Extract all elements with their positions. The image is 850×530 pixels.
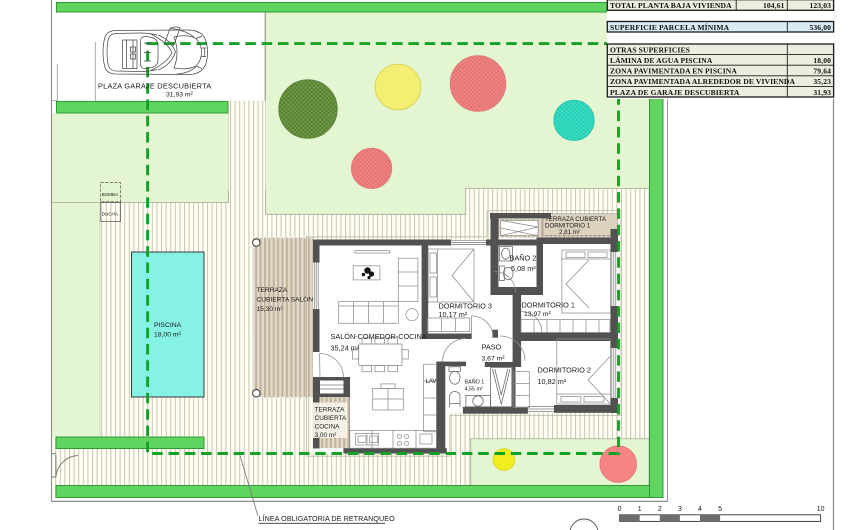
svg-text:10: 10	[817, 506, 825, 513]
svg-text:PISCINA: PISCINA	[154, 322, 182, 329]
svg-text:3,00 m²: 3,00 m²	[315, 432, 337, 439]
svg-text:5: 5	[718, 506, 722, 513]
svg-text:4: 4	[698, 506, 702, 513]
svg-text:LAV: LAV	[426, 379, 437, 385]
svg-text:10,17 m²: 10,17 m²	[439, 310, 468, 319]
svg-text:104,61: 104,61	[763, 1, 785, 10]
svg-text:BAÑO 1: BAÑO 1	[465, 379, 485, 386]
svg-text:ZONA PAVIMENTADA EN PISCINA: ZONA PAVIMENTADA EN PISCINA	[610, 67, 737, 76]
svg-text:DUCHA: DUCHA	[102, 212, 119, 217]
svg-text:LÁMINA DE AGUA PISCINA: LÁMINA DE AGUA PISCINA	[610, 55, 713, 65]
svg-text:31,93 m²: 31,93 m²	[166, 92, 194, 99]
svg-text:TERRAZA: TERRAZA	[315, 407, 346, 414]
svg-text:TOTAL PLANTA BAJA VIVIENDA: TOTAL PLANTA BAJA VIVIENDA	[610, 1, 732, 10]
svg-text:BAÑO 2: BAÑO 2	[510, 254, 537, 263]
svg-text:15,30 m²: 15,30 m²	[257, 306, 284, 313]
svg-text:3,67 m²: 3,67 m²	[482, 356, 506, 363]
svg-text:CUBIERTA SALÓN: CUBIERTA SALÓN	[257, 295, 314, 304]
svg-text:OTRAS SUPERFICIES: OTRAS SUPERFICIES	[610, 45, 690, 54]
svg-text:LÍNEA OBLIGATORIA DE RETRANQUE: LÍNEA OBLIGATORIA DE RETRANQUEO	[259, 514, 396, 523]
svg-text:2,81 m²: 2,81 m²	[559, 229, 580, 236]
svg-text:SUPERFICIE PARCELA MÍNIMA: SUPERFICIE PARCELA MÍNIMA	[610, 22, 730, 32]
svg-text:4,55 m²: 4,55 m²	[465, 387, 483, 393]
svg-text:PASO: PASO	[482, 343, 502, 352]
svg-text:DORMITORIO 2: DORMITORIO 2	[538, 366, 591, 375]
svg-text:DORMITORIO 1: DORMITORIO 1	[522, 301, 575, 310]
svg-text:COCINA: COCINA	[315, 424, 341, 431]
svg-text:BOMBA: BOMBA	[102, 192, 120, 197]
svg-text:SALÓN-COMEDOR-COCINA: SALÓN-COMEDOR-COCINA	[331, 332, 427, 341]
svg-text:0: 0	[618, 506, 622, 513]
svg-text:18,00: 18,00	[813, 56, 831, 65]
svg-text:35,24 m²: 35,24 m²	[331, 344, 360, 353]
svg-text:CUBIERTA: CUBIERTA	[315, 415, 347, 422]
svg-text:5,08 m²: 5,08 m²	[511, 264, 536, 273]
svg-text:536,00: 536,00	[810, 23, 832, 32]
svg-text:ZONA PAVIMENTADA ALREDEDOR DE: ZONA PAVIMENTADA ALREDEDOR DE VIVIENDA	[610, 77, 796, 86]
svg-text:18,00 m²: 18,00 m²	[154, 332, 182, 339]
svg-text:123,03: 123,03	[810, 1, 832, 10]
svg-text:PLAZA GARAJE DESCUBIERTA: PLAZA GARAJE DESCUBIERTA	[98, 82, 211, 91]
svg-text:3: 3	[678, 506, 682, 513]
svg-text:10,82 m²: 10,82 m²	[538, 377, 567, 386]
svg-text:PLAZA DE GARAJE DESCUBIERTA: PLAZA DE GARAJE DESCUBIERTA	[610, 88, 740, 97]
svg-text:2: 2	[658, 506, 662, 513]
svg-text:31,93: 31,93	[813, 88, 831, 97]
svg-text:TERRAZA: TERRAZA	[257, 287, 288, 294]
svg-text:1: 1	[638, 506, 642, 513]
svg-text:35,23: 35,23	[813, 77, 831, 86]
svg-text:13,97 m²: 13,97 m²	[524, 311, 552, 318]
svg-text:79,64: 79,64	[813, 67, 831, 76]
